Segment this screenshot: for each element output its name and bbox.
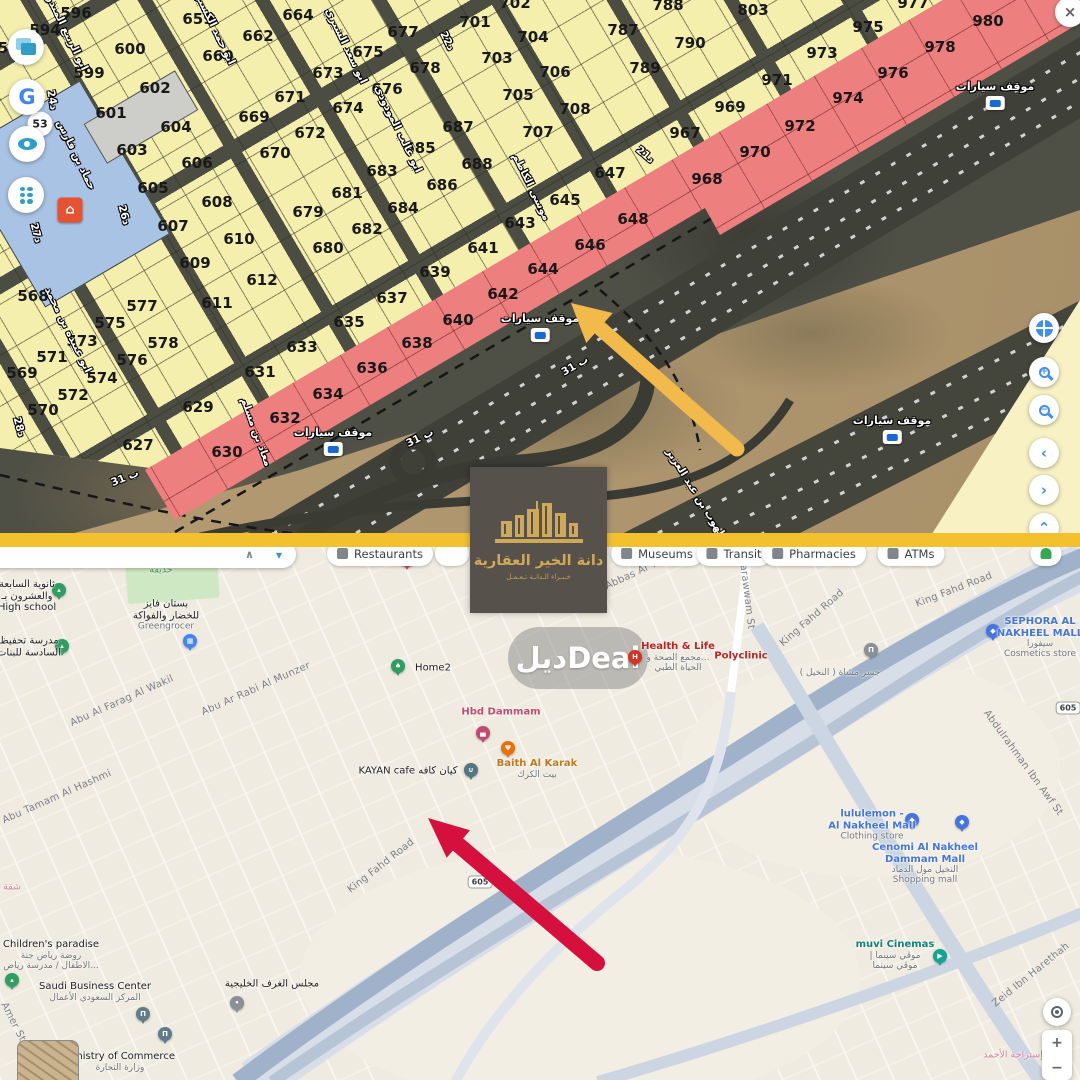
poi-pin[interactable]: H (628, 650, 642, 664)
poi-label-line: بستان فايز (144, 598, 188, 610)
globe-icon (1036, 320, 1053, 337)
parcel-number: 602 (139, 79, 170, 97)
poi-label-line: السادسة للبنات (0, 647, 61, 659)
poi-label: Saudi Business Centerالمركز السعودي الأع… (39, 981, 151, 1003)
mosque-icon: ⌂ (58, 198, 83, 223)
poi-pin[interactable]: Π (158, 1027, 172, 1041)
parcel-number: 669 (238, 108, 269, 126)
traffic-light-button[interactable] (8, 177, 44, 213)
poi-label: شقة (3, 883, 21, 894)
chevron-right-button[interactable]: › (1029, 475, 1059, 505)
poi-label: Children's paradiseروضة رياض جنةالاطفال … (3, 939, 99, 971)
car-icon (986, 96, 1005, 110)
poi-label-line: Clothing store (840, 831, 903, 841)
poi-label: إستراحة الأحمد (983, 1051, 1043, 1062)
fork-icon: Ψ (505, 745, 511, 752)
chip-label: ATMs (905, 547, 935, 561)
poi-label-line: مدرسة تحفيظ (0, 636, 59, 648)
poi-label-line: Dammam Mall (885, 854, 965, 866)
parcel-number: 967 (669, 124, 700, 142)
poi-pin[interactable]: ◆ (955, 815, 969, 829)
parcel-number: 606 (181, 154, 212, 172)
parcel-number: 978 (924, 38, 955, 56)
poi-label: muvi Cinemas| موڤي سينماموڤي سينما (856, 939, 935, 971)
H-icon: H (632, 654, 638, 661)
parcel-number: 674 (332, 99, 363, 117)
parcel-number: 636 (356, 359, 387, 377)
parcel-number: 627 (122, 436, 153, 454)
poi-label-line: Health & Life (641, 641, 715, 653)
parking-label: موقف سيارات (501, 312, 579, 342)
my-location-button[interactable] (1043, 998, 1071, 1026)
parcel-number: 673 (312, 64, 343, 82)
parcel-number: 612 (246, 271, 277, 289)
logo-buildings-icon (489, 499, 589, 549)
category-icon (706, 548, 717, 559)
route-badge: 605 (1056, 702, 1080, 715)
poi-label-line: إستراحة الأحمد (983, 1051, 1043, 1062)
parcel-number: 644 (527, 260, 558, 278)
parcel-number: 640 (442, 311, 473, 329)
eye-icon (18, 138, 37, 150)
parking-label: موقف سيارات (853, 414, 931, 444)
poi-label-line: مجلس الغرف الخليجية (225, 978, 319, 990)
poi-pin[interactable]: Π (864, 643, 878, 657)
poi-label-line: Polyclinic (714, 650, 767, 662)
parcel-number: 570 (27, 401, 58, 419)
parcel-number: 678 (409, 59, 440, 77)
car-icon (324, 442, 343, 456)
bag-icon: ◆ (990, 628, 995, 635)
poi-label-line: شقة (3, 883, 21, 894)
parcel-number: 975 (852, 18, 883, 36)
parcel-number: 610 (223, 230, 254, 248)
company-logo: دانة الخير العقارية خـبـراء الـدانـة تـع… (470, 467, 607, 613)
parcel-number: 569 (6, 364, 37, 382)
poi-label-line: Hbd Dammam (461, 706, 540, 718)
poi-label-line: موڤي سينما (872, 961, 917, 971)
parcel-number: 629 (182, 398, 213, 416)
poi-label-line: مجمع الصحة و... (647, 652, 710, 662)
parcel-number: 701 (459, 13, 490, 31)
school-icon: ▴ (57, 587, 61, 594)
poi-label: Ministry of Commerceوزارة التجارة (65, 1051, 175, 1073)
parcel-number: 601 (95, 104, 126, 122)
parcel-number: 662 (242, 27, 273, 45)
poi-label: Baith Al Karakبيت الكرك (497, 758, 578, 780)
parcel-number: 5 (0, 39, 8, 57)
category-icon (337, 548, 348, 559)
parcel-number: 707 (522, 123, 553, 141)
parcel-number: 788 (652, 0, 683, 14)
parcel-number: 708 (559, 100, 590, 118)
parcel-number: 977 (897, 0, 928, 12)
car-icon (531, 328, 550, 342)
chip-label: Museums (638, 547, 693, 561)
poi-pin[interactable]: ▄ (476, 726, 490, 740)
zoom-in-button[interactable]: + (1029, 357, 1059, 387)
parcel-number: 575 (94, 314, 125, 332)
parcel-number: 609 (179, 254, 210, 272)
zoom-out-button[interactable]: − (1029, 395, 1059, 425)
bank-icon: Π (162, 1031, 168, 1038)
poi-pin[interactable]: ▴ (5, 973, 19, 987)
parcel-number: 970 (739, 143, 770, 161)
poi-label: مجلس الغرف الخليجية (225, 978, 319, 990)
poi-pin[interactable]: Π (136, 1007, 150, 1021)
parcel-number: 577 (126, 297, 157, 315)
poi-pin[interactable]: ∪ (464, 763, 478, 777)
chip-label: Transit (723, 547, 761, 561)
parcel-number: 608 (201, 193, 232, 211)
poi-label-line: muvi Cinemas (856, 939, 935, 951)
poi-label-line: جسر مشاة ( النخيل ) (800, 668, 881, 678)
poi-label-line: Saudi Business Center (39, 981, 151, 993)
parcel-number: 681 (331, 184, 362, 202)
poi-label-line: SEPHORA AL (1004, 616, 1075, 628)
parcel-number: 642 (487, 285, 518, 303)
parcel-number: 972 (784, 117, 815, 135)
parcel-number: 682 (351, 220, 382, 238)
dot-icon: • (235, 1000, 239, 1007)
parcel-number: 703 (481, 49, 512, 67)
collapse-caret-icon[interactable]: ∧ (245, 548, 254, 561)
parcel-number: 968 (691, 170, 722, 188)
parcel-number: 672 (294, 124, 325, 142)
poi-label: Health & Lifeمجمع الصحة و...الحياة الطبي (641, 641, 715, 673)
close-button[interactable]: × (1055, 0, 1080, 27)
parcel-number: 671 (274, 88, 305, 106)
parcel-number: 683 (366, 162, 397, 180)
parcel-number: 574 (86, 369, 117, 387)
close-icon: × (1064, 5, 1077, 20)
my-location-icon (1051, 1006, 1063, 1018)
poi-label-line: والعشرون بـ (2, 590, 53, 602)
parcel-number: 973 (806, 44, 837, 62)
parcel-number: 637 (376, 289, 407, 307)
logo-title: دانة الخير العقارية (474, 553, 604, 569)
parcel-number: 576 (116, 351, 147, 369)
poi-label-line: Al Nakheel Mall (828, 820, 916, 832)
parcel-number: 980 (972, 12, 1003, 30)
poi-label-line: High school (0, 602, 56, 614)
deal-watermark: ديلDeal (508, 627, 648, 689)
zoom-controls: + − (1042, 1030, 1072, 1080)
parcel-number: 635 (333, 313, 364, 331)
google-g-icon: G (18, 87, 35, 108)
poi-label-line: الحياة الطبي (655, 663, 702, 673)
tree-icon: ♠ (395, 663, 401, 670)
poi-label-line: Children's paradise (3, 939, 99, 951)
poi-label-line: Cenomi Al Nakheel (872, 842, 978, 854)
car-icon (883, 430, 902, 444)
poi-label-line: Ministry of Commerce (65, 1051, 175, 1063)
parcel-number: 605 (137, 179, 168, 197)
layers-icon (21, 43, 36, 55)
parcel-number: 687 (442, 118, 473, 136)
parcel-number: 633 (286, 338, 317, 356)
parcel-number: 641 (467, 239, 498, 257)
parcel-number: 631 (244, 363, 275, 381)
poi-label: SEPHORA ALNAKHEEL MALLسيفوراCosmetics st… (997, 616, 1080, 660)
parcel-number: 572 (57, 386, 88, 404)
parcel-number: 630 (211, 443, 242, 461)
poi-label: Cenomi Al NakheelDammam Mallالنخيل مول ا… (872, 842, 978, 886)
parcel-number: 702 (499, 0, 530, 12)
poi-label-line: الاطفال / مدرسة رياض... (3, 961, 99, 971)
zoom-out-icon: − (1039, 405, 1050, 416)
zoom-in-icon: + (1039, 367, 1050, 378)
parcel-number: 705 (502, 86, 533, 104)
parcel-number: 638 (401, 334, 432, 352)
eye-button[interactable] (9, 126, 45, 162)
poi-pin[interactable]: • (230, 996, 244, 1010)
poi-label: مدرسة تحفيظالسادسة للبنات (0, 636, 61, 659)
parcel-number: 643 (504, 214, 535, 232)
cart-icon: ▦ (187, 638, 194, 645)
parcel-number: 969 (714, 98, 745, 116)
parcel-number: 686 (426, 176, 457, 194)
parcel-number: 632 (269, 409, 300, 427)
bed-icon: ▄ (480, 730, 485, 737)
chip-label: Restaurants (354, 547, 423, 561)
poi-label-line: Baith Al Karak (497, 758, 578, 770)
bank-icon: Π (140, 1011, 146, 1018)
poi-label-line: KAYAN cafe كيان كافه (358, 765, 457, 777)
poi-label-line: سيفورا (1027, 639, 1053, 649)
parcel-number: 706 (539, 63, 570, 81)
poi-label: ثانوية السابعةوالعشرون بـHigh school (0, 579, 56, 614)
poi-label-line: النخيل مول الدماد (892, 865, 959, 875)
zoom-in-button[interactable]: + (1051, 1036, 1063, 1050)
poi-label-line: للخضار والفواكة (133, 610, 199, 622)
poi-pin[interactable]: ♠ (391, 659, 405, 673)
bridge-icon: Π (868, 647, 874, 654)
category-icon (772, 548, 783, 559)
parcel-number: 634 (312, 385, 343, 403)
poi-pin[interactable]: ▦ (183, 634, 197, 648)
poi-label: جسر مشاة ( النخيل ) (800, 668, 881, 678)
parcel-number: 648 (617, 210, 648, 228)
poi-label-line: بيت الكرك (517, 770, 557, 780)
parcel-number: 679 (292, 203, 323, 221)
parcel-number: 603 (116, 141, 147, 159)
poi-label: Home2 (415, 662, 451, 674)
parcel-number: 976 (877, 64, 908, 82)
parcel-number: 664 (282, 6, 313, 24)
school-icon: ▴ (10, 977, 14, 984)
bag-icon: ◆ (959, 819, 964, 826)
poi-pin[interactable]: ▶ (933, 949, 947, 963)
screenshot-root: ⌂ 53 ديلDeal ∧ ▾ + − (0, 0, 1080, 1080)
google-g-button[interactable]: G (9, 79, 45, 115)
parcel-number: 971 (761, 71, 792, 89)
poi-label-line: المركز السعودي الأعمال (49, 993, 140, 1003)
poi-label: بستان فايزللخضار والفواكةGreengrocer (133, 598, 199, 631)
poi-label: lululemon -Al Nakheel MallClothing store (828, 808, 916, 841)
parcel-number: 790 (674, 34, 705, 52)
globe-button[interactable] (1029, 313, 1059, 343)
parcel-number: 646 (574, 236, 605, 254)
parcel-number: 677 (387, 23, 418, 41)
parcel-number: 803 (737, 1, 768, 19)
parcel-number: 611 (201, 294, 232, 312)
parking-label: موقف سيارات (294, 426, 372, 456)
satellite-layer-thumbnail[interactable] (17, 1040, 79, 1080)
parking-label: موقف سيارات (956, 80, 1034, 110)
parcel-number: 645 (549, 191, 580, 209)
route-badge: 605 (468, 876, 493, 889)
parcel-number: 974 (832, 89, 863, 107)
poi-label: KAYAN cafe كيان كافه (358, 765, 457, 777)
layers-button[interactable] (8, 29, 44, 65)
poi-label: Polyclinic (714, 650, 767, 662)
open-area (680, 657, 1060, 877)
dropdown-icon[interactable]: ▾ (276, 548, 282, 562)
chip-label: Pharmacies (789, 547, 856, 561)
parcel-number: 787 (607, 21, 638, 39)
chevron-left-button[interactable]: ‹ (1029, 438, 1059, 468)
parcel-number: 571 (36, 348, 67, 366)
parcel-number: 688 (461, 155, 492, 173)
logo-tagline: خـبـراء الـدانـة تـعـمـل (506, 573, 570, 581)
poi-label-line: Greengrocer (138, 621, 194, 631)
poi-label-line: Home2 (415, 662, 451, 674)
poi-label-line: | موڤي سينما (870, 950, 921, 960)
poi-label-line: ثانوية السابعة (0, 579, 55, 591)
poi-label-line: وزارة التجارة (96, 1063, 145, 1073)
parcel-number: 604 (160, 118, 191, 136)
parcel-number: 578 (147, 334, 178, 352)
traffic-light-icon (20, 187, 33, 204)
film-icon: ▶ (937, 953, 942, 960)
poi-label: Hbd Dammam (461, 706, 540, 718)
parcel-number: 670 (259, 144, 290, 162)
parcel-number: 600 (114, 40, 145, 58)
parcel-number: 789 (629, 59, 660, 77)
category-icon (621, 548, 632, 559)
cup-icon: ∪ (468, 767, 474, 774)
chevron-right-icon: › (1041, 483, 1047, 498)
parcel-number: 684 (387, 199, 418, 217)
zoom-out-button[interactable]: − (1051, 1061, 1063, 1075)
parcel-number: 704 (517, 28, 548, 46)
parcel-number: 647 (594, 164, 625, 182)
parcel-number: 639 (419, 263, 450, 281)
park-icon (1041, 548, 1052, 559)
chevron-left-icon: ‹ (1041, 446, 1047, 461)
category-icon (888, 548, 899, 559)
poi-label-line: Shopping mall (893, 876, 957, 886)
poi-label-line: NAKHEEL MALL (997, 628, 1080, 640)
poi-label-line: lululemon - (840, 808, 903, 820)
poi-label-line: Cosmetics store (1004, 650, 1076, 660)
poi-pin[interactable]: Ψ (501, 741, 515, 755)
parcel-number: 680 (312, 239, 343, 257)
parcel-number: 607 (157, 217, 188, 235)
poi-label-line: روضة رياض جنة (21, 950, 81, 960)
